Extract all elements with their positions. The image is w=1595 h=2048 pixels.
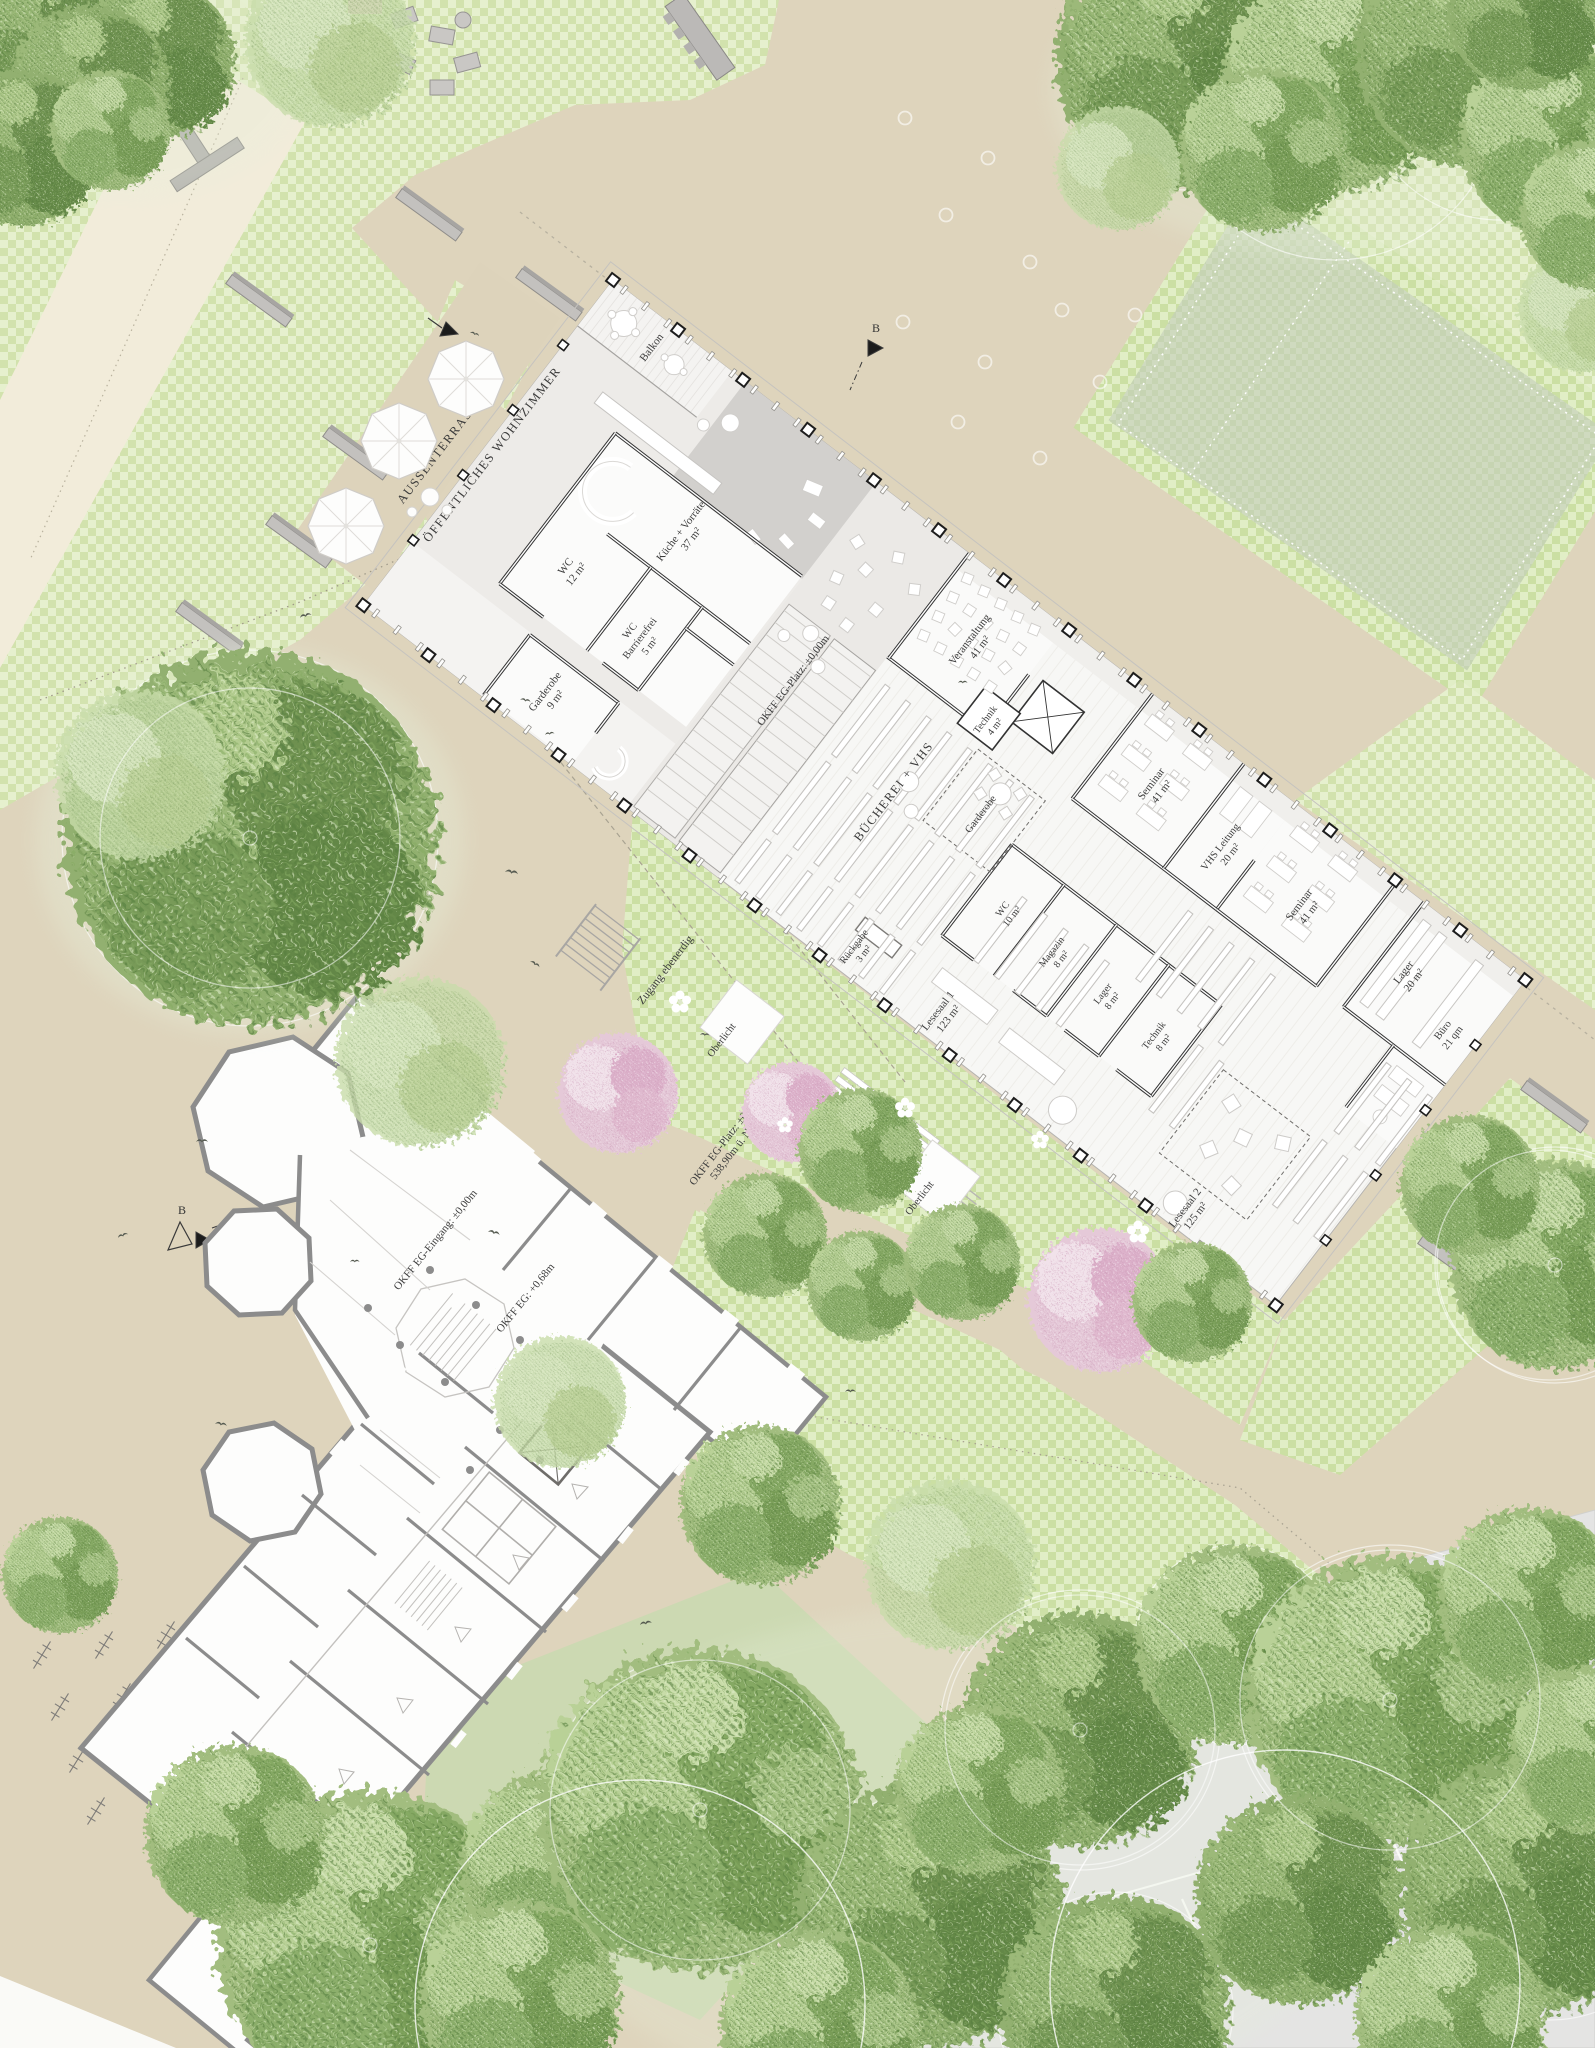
svg-text:B: B: [178, 1203, 186, 1217]
svg-text:B: B: [872, 321, 880, 335]
